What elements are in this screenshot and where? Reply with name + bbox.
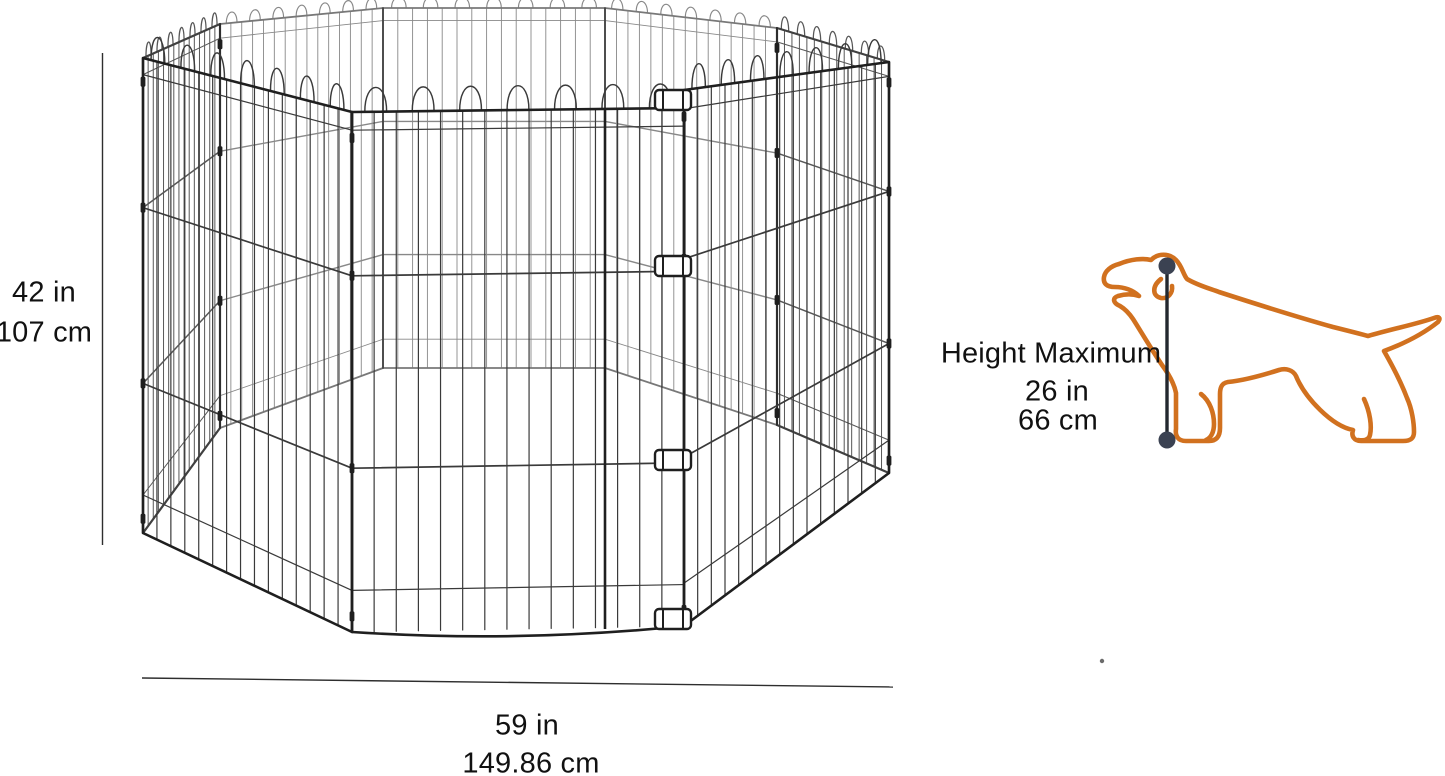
product-dimension-diagram: 42 in 107 cm 59 in 149.86 cm Height Maxi…: [0, 0, 1445, 776]
pen-width-label-in: 59 in: [495, 709, 559, 744]
pen-height-label-in: 42 in: [12, 276, 76, 311]
pen-height-label-cm: 107 cm: [0, 316, 92, 351]
dog-far-rear-leg: [1358, 399, 1371, 440]
dimension-annotations: [0, 0, 1445, 776]
dog-ear-detail: [1154, 279, 1172, 298]
dog-height-label-cm: 66 cm: [1018, 404, 1098, 439]
dog-far-front-leg: [1201, 394, 1214, 440]
width-dimension-line: [142, 678, 893, 687]
stray-dot: [1100, 659, 1104, 663]
pen-width-label-cm: 149.86 cm: [462, 747, 599, 776]
dog-height-title: Height Maximum: [941, 337, 1161, 372]
